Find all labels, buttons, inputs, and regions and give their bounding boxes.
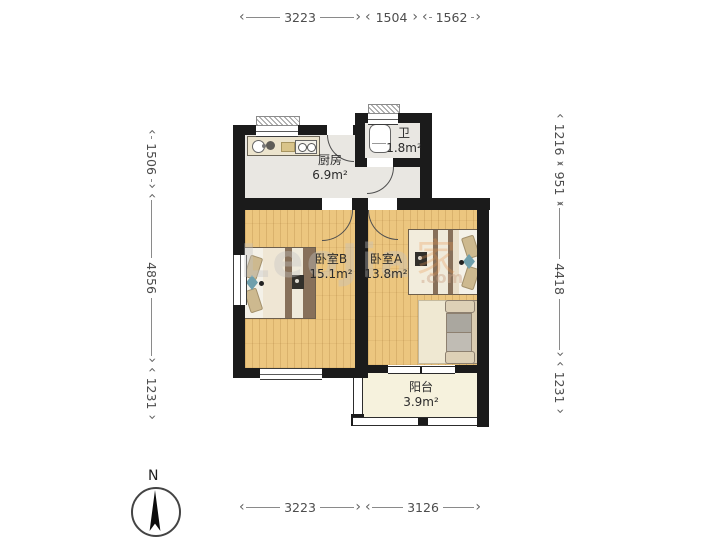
arrowhead-icon: › [553, 350, 567, 358]
balcony-name: 阳台 [394, 380, 448, 395]
cutting-board-icon [281, 142, 295, 152]
arrowhead-icon: ‹ [145, 366, 159, 374]
kitchen-label: 厨房 6.9m² [300, 153, 360, 183]
dim-left-3: ‹ 1231 › [144, 366, 160, 410]
kitchen-window [256, 125, 298, 137]
arrowhead-icon: › [145, 182, 159, 190]
sofa [445, 300, 478, 362]
dim-right-3: ‹ 4418 › [552, 200, 568, 358]
wall-bedrooms-top [233, 198, 322, 210]
wall-bedrooms-top [352, 198, 368, 210]
dim-label: 3223 [280, 10, 320, 25]
dim-right-4: ‹ 1231 › [552, 360, 568, 408]
bedroom-a-name: 卧室A [359, 252, 413, 267]
dim-top-2: ‹ 1504 › [364, 9, 419, 25]
kitchen-name: 厨房 [300, 153, 360, 168]
arrowhead-icon: ‹ [145, 128, 159, 136]
bed-runner [438, 230, 448, 294]
bedroom-a-area: 13.8m² [359, 267, 413, 282]
sofa-armrest [445, 300, 475, 313]
arrowhead-icon: › [553, 407, 567, 415]
wall-between-bedrooms [355, 210, 368, 378]
kitchen-window-sill [256, 116, 300, 126]
compass-north-label: N [148, 468, 158, 484]
burner-icon [307, 143, 316, 152]
arrowhead-icon: ‹ [364, 500, 372, 514]
dim-label: 3223 [280, 500, 320, 515]
dim-label: 1231 [553, 368, 568, 408]
dim-right-1: ‹ 1216 › [552, 112, 568, 158]
bedroom-b-name: 卧室B [304, 252, 358, 267]
arrowhead-icon: ‹ [553, 112, 567, 120]
wall-kitchen-top [298, 125, 327, 135]
balcony-area: 3.9m² [394, 395, 448, 410]
dim-label: 4856 [145, 258, 160, 298]
bathroom-name: 卫 [380, 126, 428, 141]
bed-bedroom-a [408, 229, 479, 295]
dim-top-3: ‹ 1562 › [421, 9, 482, 25]
arrowhead-icon: ‹ [238, 10, 246, 24]
arrowhead-icon: › [354, 500, 362, 514]
arrowhead-icon: ‹ [553, 360, 567, 368]
dim-bottom-2: ‹ 3126 › [364, 499, 482, 515]
sofa-armrest [445, 351, 475, 364]
bedroom-b-label: 卧室B 15.1m² [304, 252, 358, 282]
arrowhead-icon: › [145, 356, 159, 364]
dim-label: 4418 [553, 259, 568, 299]
wall-bedroom-b-bottom [322, 368, 365, 378]
dim-label: 1231 [145, 374, 160, 414]
arrowhead-icon: ‹ [145, 192, 159, 200]
wall-bath-bottom [393, 158, 432, 167]
wall-bedroom-b-bottom [233, 368, 260, 378]
dim-label: 951 [553, 168, 568, 200]
dim-bottom-1: ‹ 3223 › [238, 499, 362, 515]
dim-label: 3126 [403, 500, 443, 515]
bath-window-sill [368, 104, 400, 114]
bed-knob [259, 281, 264, 286]
burner-icon [298, 143, 307, 152]
dim-left-1: ‹ 1506 › [144, 128, 160, 190]
arrowhead-icon: ‹ [421, 10, 429, 24]
balcony-bottom-railing [353, 417, 477, 426]
bedroom-b-window [260, 368, 322, 380]
wall-bedroom-a-bottom [368, 365, 388, 373]
dim-label: 1504 [372, 10, 412, 25]
bed-tray [415, 252, 427, 266]
floorplan-canvas: LeoJia 家 .com 厨房 6.9m² 卫 1.8m² 卧室B 15.1m… [0, 0, 720, 540]
arrowhead-icon: ‹ [553, 160, 567, 168]
arrowhead-icon: › [145, 413, 159, 421]
arrowhead-icon: ‹ [238, 500, 246, 514]
bedroom-b-area: 15.1m² [304, 267, 358, 282]
wall-kitchen-top [233, 125, 256, 135]
arrowhead-icon: › [354, 10, 362, 24]
bed-tray [292, 275, 304, 289]
wall-exterior-right [477, 198, 489, 427]
arrowhead-icon: ‹ [364, 10, 372, 24]
arrowhead-icon: › [474, 500, 482, 514]
bath-window [368, 113, 398, 125]
bed-knob [459, 260, 464, 265]
sink-icon [252, 140, 265, 153]
dim-left-2: ‹ 4856 › [144, 192, 160, 364]
balcony-label: 阳台 3.9m² [394, 380, 448, 410]
wall-bedroom-a-bottom [455, 365, 477, 373]
bed-sheet [263, 248, 285, 318]
arrowhead-icon: ‹ [553, 200, 567, 208]
stove-icon [295, 140, 317, 154]
wall-exterior-left [233, 125, 245, 378]
sofa-cushion [446, 332, 472, 352]
bedroom-b-side-window [233, 255, 247, 305]
kitchen-area: 6.9m² [300, 168, 360, 183]
dim-top-1: ‹ 3223 › [238, 9, 362, 25]
dim-label: 1216 [553, 120, 568, 160]
bedroom-a-label: 卧室A 13.8m² [359, 252, 413, 282]
dim-label: 1562 [432, 10, 472, 25]
wall-bath-top [355, 113, 368, 123]
dim-label: 1506 [145, 139, 160, 179]
dim-right-2: ‹ 951 › [552, 160, 568, 198]
balcony-slider-window [388, 366, 455, 374]
arrowhead-icon: › [474, 10, 482, 24]
arrowhead-icon: › [411, 10, 419, 24]
balcony-left-railing [353, 378, 363, 417]
pot-icon [266, 141, 275, 150]
bathroom-label: 卫 1.8m² [380, 126, 428, 156]
sofa-cushion [446, 313, 472, 333]
bathroom-area: 1.8m² [380, 141, 428, 156]
